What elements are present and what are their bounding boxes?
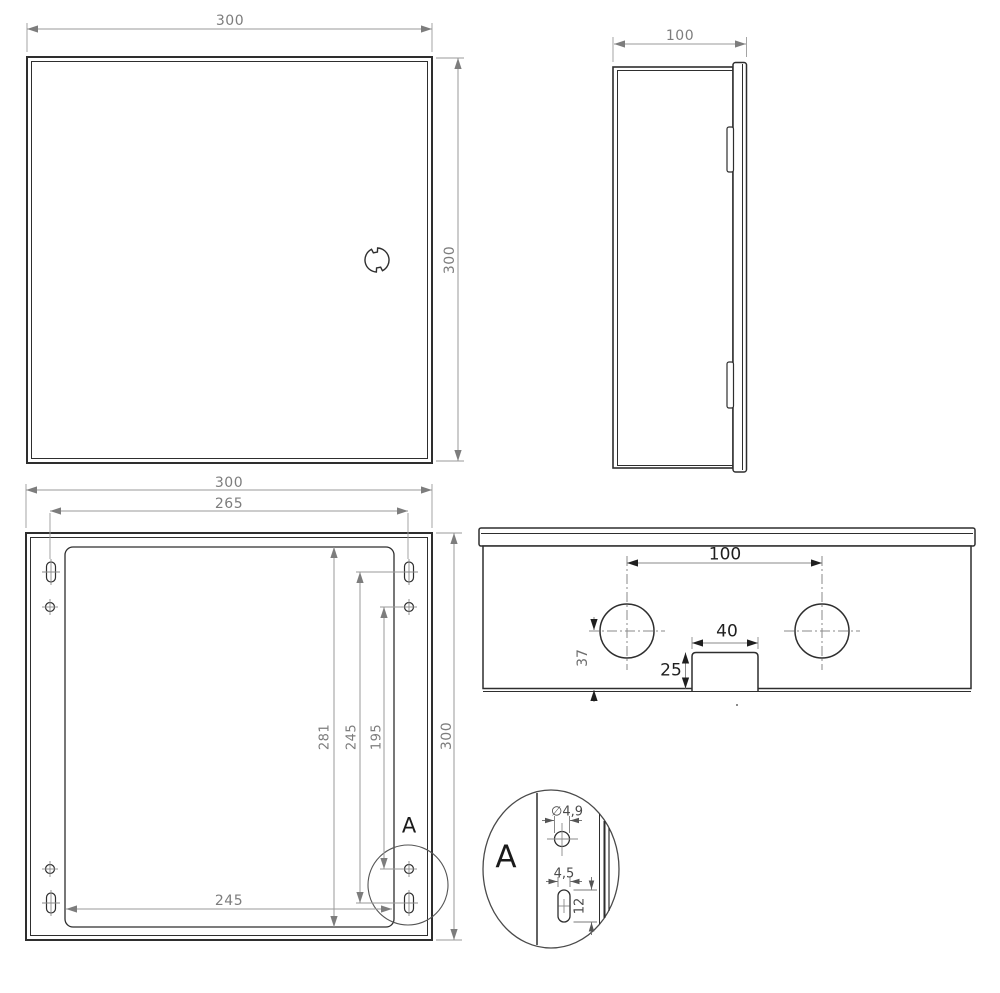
dim-gland-offset: 37 [576,649,590,667]
dim-front-width: 300 [216,14,244,28]
dim-back-slot-spacing-h: 265 [215,497,243,511]
dim-detail-slot-length: 12 [574,898,587,915]
side-view [613,37,747,472]
detail-view-label: A [495,843,516,874]
back-view [26,484,462,940]
dim-gland-spacing: 100 [709,547,741,564]
hinge-top [727,127,734,172]
dim-front-height: 300 [443,246,457,274]
dim-back-hole-spacing-v: 195 [371,724,384,750]
dim-side-depth: 100 [666,29,694,43]
cable-notch [692,653,758,692]
dim-back-slot-spacing-v: 245 [346,724,359,750]
dim-back-inner-height: 281 [319,724,332,750]
dim-detail-slot-width: 4,5 [554,868,575,881]
top-door-flange [479,528,975,546]
dim-back-height: 300 [440,722,454,750]
dim-back-width: 300 [215,476,243,490]
hinge-bottom [727,362,734,408]
dim-detail-hole-diameter: ∅4,9 [551,806,583,819]
dim-notch-width: 40 [716,624,738,641]
side-door-outline [733,63,747,473]
detail-marker-label: A [402,816,416,837]
drawing-sheet: 300 300 100 300 265 281 245 195 300 245 … [0,0,1000,993]
side-body-outline [613,67,733,468]
front-view [27,23,464,463]
dim-notch-depth: 25 [660,663,682,680]
dim-back-inner-width: 245 [215,894,243,908]
stray-speck [736,704,738,706]
